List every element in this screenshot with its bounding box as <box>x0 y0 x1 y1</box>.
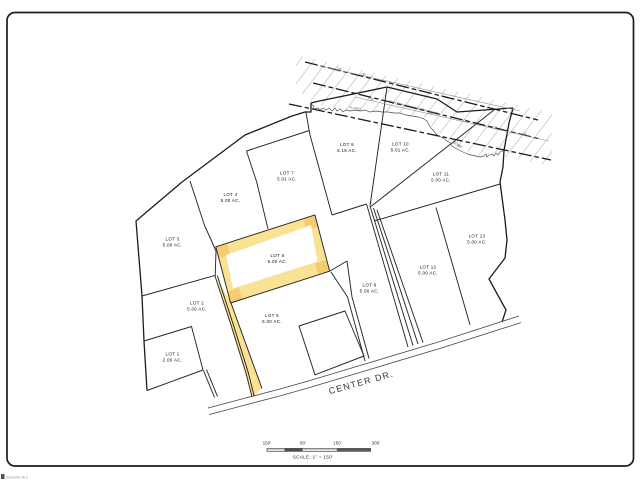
svg-text:5.00 AC.: 5.00 AC. <box>163 242 183 247</box>
svg-text:5.00 AC.: 5.00 AC. <box>187 306 207 311</box>
svg-text:5.00 AC.: 5.00 AC. <box>467 239 487 244</box>
svg-text:00': 00' <box>300 441 306 446</box>
svg-text:5.00 AC.: 5.00 AC. <box>221 198 241 203</box>
svg-text:LOT 8: LOT 8 <box>363 283 377 288</box>
svg-text:LOT 13: LOT 13 <box>469 234 486 239</box>
svg-text:5.01 AC.: 5.01 AC. <box>391 147 411 152</box>
svg-text:5.00 AC.: 5.00 AC. <box>418 270 438 275</box>
svg-text:LOT 1: LOT 1 <box>166 352 180 357</box>
svg-text:LOT 10: LOT 10 <box>392 142 409 147</box>
svg-text:LOT 3: LOT 3 <box>166 237 180 242</box>
svg-text:5.15 AC.: 5.15 AC. <box>337 148 357 153</box>
svg-text:LOT 5: LOT 5 <box>271 253 285 258</box>
svg-text:LOT 4: LOT 4 <box>224 192 238 197</box>
svg-text:LOT 11: LOT 11 <box>433 172 450 177</box>
svg-text:5.01 AC.: 5.01 AC. <box>277 176 297 181</box>
svg-text:LOT 7: LOT 7 <box>280 171 294 176</box>
svg-text:2.00 AC.: 2.00 AC. <box>163 357 183 362</box>
svg-text:150': 150' <box>263 441 272 446</box>
svg-text:LOT 12: LOT 12 <box>420 265 437 270</box>
svg-text:Greenville MLS: Greenville MLS <box>6 476 29 480</box>
svg-text:SCALE: 1" = 150': SCALE: 1" = 150' <box>293 455 333 460</box>
svg-text:150': 150' <box>333 441 342 446</box>
svg-text:300': 300' <box>372 441 381 446</box>
svg-text:5.00 AC.: 5.00 AC. <box>360 288 380 293</box>
svg-text:5.00 AC.: 5.00 AC. <box>431 177 451 182</box>
svg-text:LOT 2: LOT 2 <box>190 301 204 306</box>
svg-text:LOT 6: LOT 6 <box>265 313 279 318</box>
svg-text:5.00 AC.: 5.00 AC. <box>262 319 282 324</box>
svg-text:5.00 AC.: 5.00 AC. <box>268 259 288 264</box>
svg-text:LOT 9: LOT 9 <box>340 142 354 147</box>
